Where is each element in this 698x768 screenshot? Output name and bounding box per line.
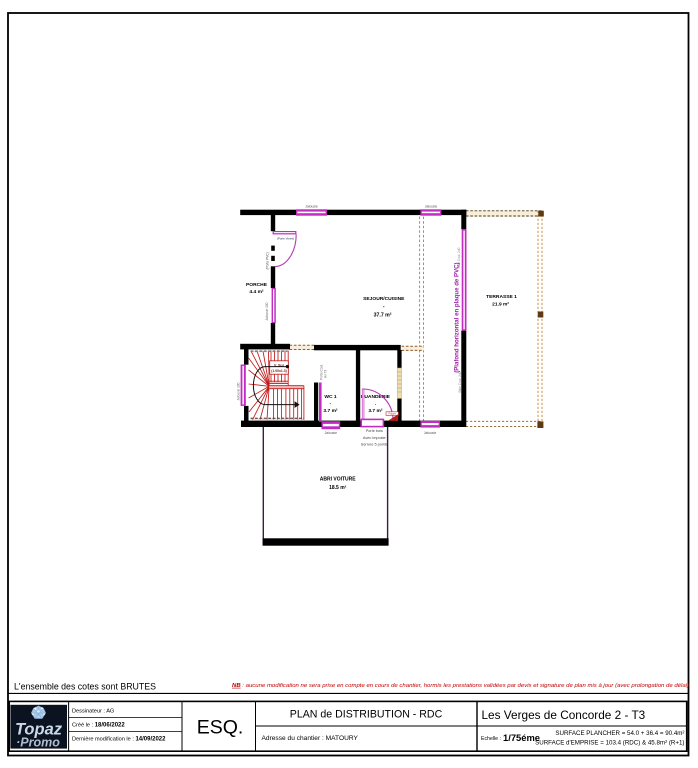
svg-text:PORCHE: PORCHE xyxy=(246,282,268,288)
svg-text:.: . xyxy=(375,402,377,407)
svg-text:21.9 m²: 21.9 m² xyxy=(492,302,509,308)
svg-text:SURFACE d'EMPRISE = 103.4 (RDC: SURFACE d'EMPRISE = 103.4 (RDC) & 45.8m²… xyxy=(535,740,684,747)
svg-text:-: - xyxy=(383,304,385,310)
svg-text:Les Verges de Concorde 2 - T3: Les Verges de Concorde 2 - T3 xyxy=(482,708,646,722)
svg-text:Jalousie 100: Jalousie 100 xyxy=(236,382,240,400)
svg-text:Avec imposte: Avec imposte xyxy=(363,436,386,440)
svg-text:Future: Future xyxy=(388,412,396,416)
svg-text:Adresse du chantier : MATOURY: Adresse du chantier : MATOURY xyxy=(262,735,359,742)
svg-text:Av 73: Av 73 xyxy=(324,370,328,378)
svg-text:Jalousie: Jalousie xyxy=(425,204,438,208)
svg-text:(Plafond horizontal en plaque: (Plafond horizontal en plaque de PVC) xyxy=(453,262,460,372)
svg-text:37.7 m²: 37.7 m² xyxy=(374,312,392,318)
svg-text:SEJOUR/CUISINE: SEJOUR/CUISINE xyxy=(363,296,405,302)
svg-text:PLAN de DISTRIBUTION - RDC: PLAN de DISTRIBUTION - RDC xyxy=(290,709,443,721)
svg-text:Dernière modification le : 14/: Dernière modification le : 14/09/2022 xyxy=(72,736,166,742)
svg-text:3.7 m²: 3.7 m² xyxy=(323,408,338,414)
svg-text:Jalousie 100: Jalousie 100 xyxy=(265,302,269,320)
svg-text:(Porte PVC): (Porte PVC) xyxy=(265,252,269,269)
svg-text:NB : aucune modification ne s: NB : aucune modification ne sera prise e… xyxy=(232,683,689,689)
svg-text:Porte bois: Porte bois xyxy=(366,429,383,433)
svg-text:TERRASSE 1: TERRASSE 1 xyxy=(486,294,517,300)
svg-text:WC 1: WC 1 xyxy=(324,394,337,400)
svg-text:ABRI VOITURE: ABRI VOITURE xyxy=(320,476,357,482)
svg-text:Jalousie: Jalousie xyxy=(305,204,318,208)
svg-text:ESQ.: ESQ. xyxy=(197,717,244,739)
svg-text:Baie Coul. 240: Baie Coul. 240 xyxy=(458,371,462,392)
svg-text:18.5 m²: 18.5 m² xyxy=(329,485,347,491)
svg-text:Jalousie: Jalousie xyxy=(325,431,338,435)
svg-text:Dessinateur : AG: Dessinateur : AG xyxy=(72,709,114,715)
svg-text:Serrure 5 points: Serrure 5 points xyxy=(361,442,388,446)
svg-text:·Promo: ·Promo xyxy=(16,736,60,750)
svg-text:(Porte Vitrée): (Porte Vitrée) xyxy=(277,236,294,240)
svg-text:3.7 m²: 3.7 m² xyxy=(368,408,383,414)
svg-text:L'ensemble des cotes sont BRUT: L'ensemble des cotes sont BRUTES xyxy=(14,681,156,691)
svg-text:BUANDERIE: BUANDERIE xyxy=(361,394,391,400)
svg-text:Jalousie: Jalousie xyxy=(424,431,437,435)
svg-text:Créé le : 18/06/2022: Créé le : 18/06/2022 xyxy=(72,722,125,728)
svg-text:SURFACE PLANCHER = 54.0 + 36.4: SURFACE PLANCHER = 54.0 + 36.4 = 90.4m² xyxy=(555,730,684,737)
svg-text:-: - xyxy=(330,402,332,407)
svg-text:Echelle :: Echelle : xyxy=(481,736,501,742)
svg-text:4.4 m²: 4.4 m² xyxy=(249,289,264,295)
svg-text:(1.00x1.3): (1.00x1.3) xyxy=(271,369,286,373)
